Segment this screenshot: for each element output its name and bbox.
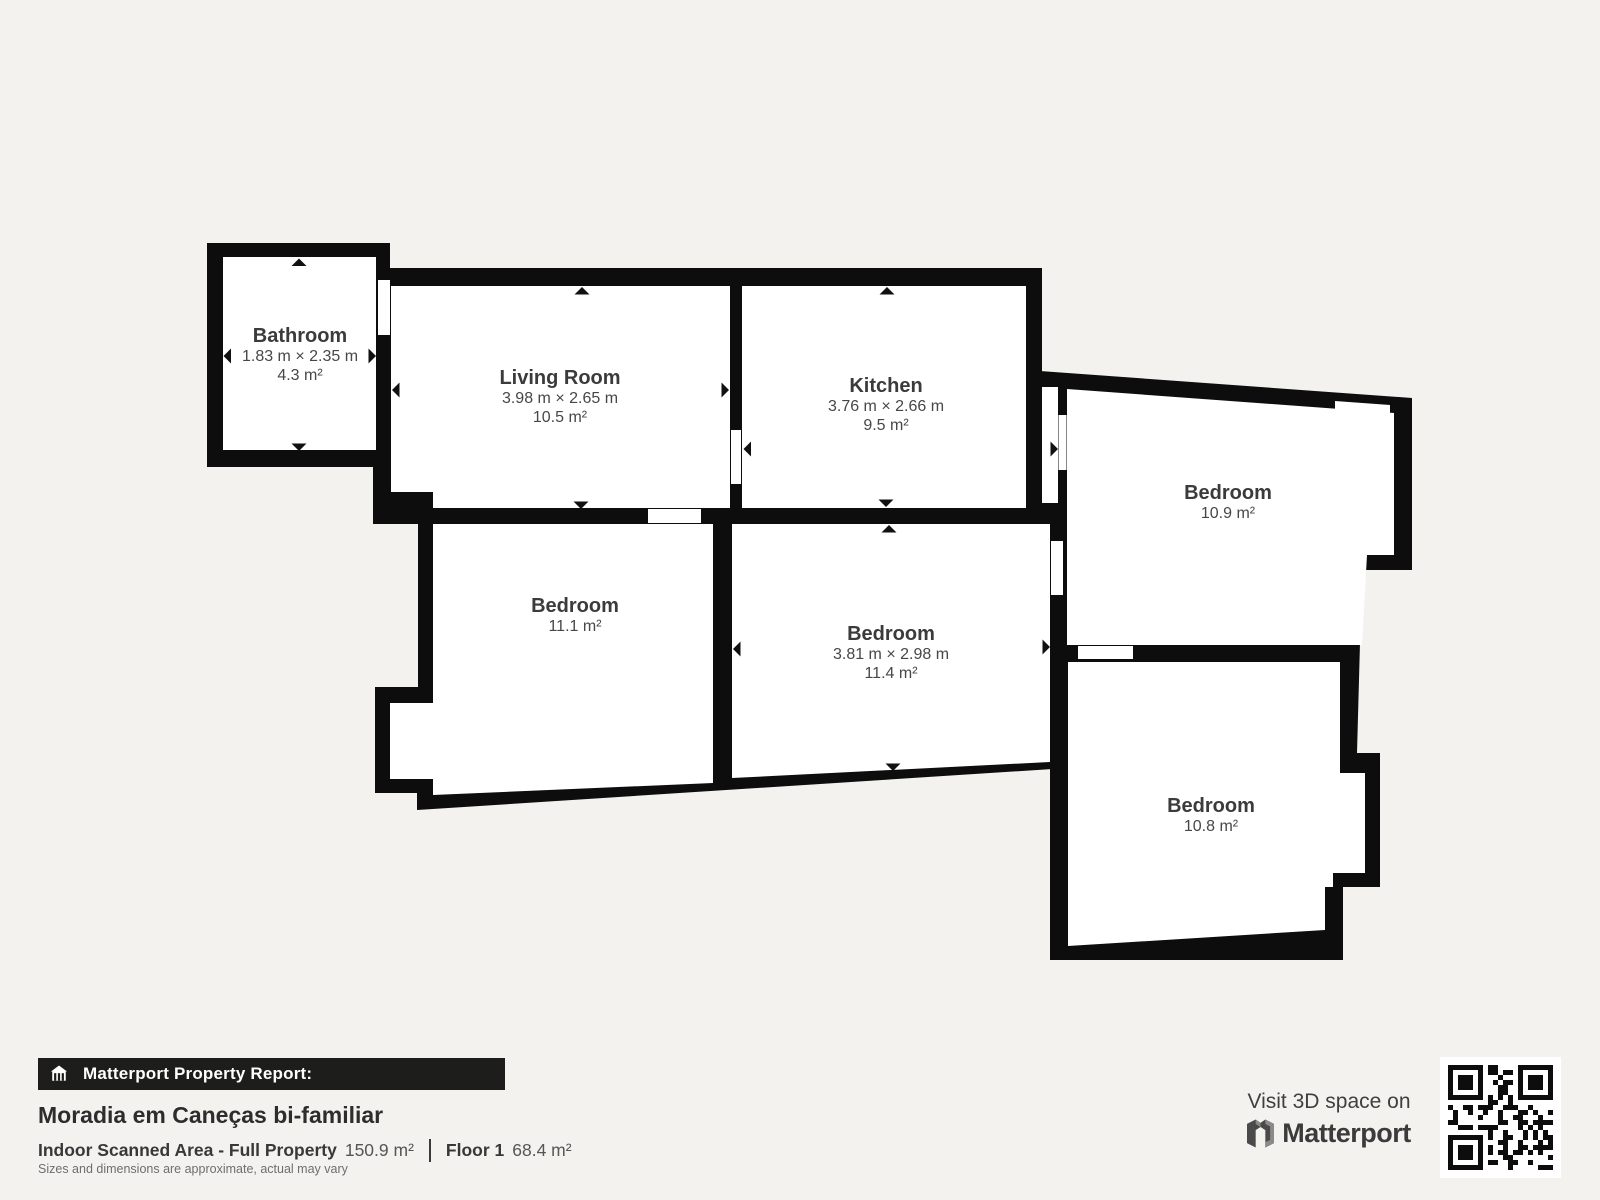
room-name: Living Room bbox=[499, 368, 620, 389]
area-summary: Indoor Scanned Area - Full Property 150.… bbox=[38, 1139, 572, 1162]
room-label-bedroom-bottom-right: Bedroom 10.8 m² bbox=[1167, 796, 1255, 836]
report-badge: Matterport Property Report: bbox=[38, 1058, 505, 1090]
window-opening-kitchen-right bbox=[1059, 415, 1067, 470]
room-dimensions: 3.81 m × 2.98 m bbox=[833, 645, 949, 664]
room-name: Bedroom bbox=[1184, 483, 1272, 504]
room-name: Bedroom bbox=[833, 624, 949, 645]
report-badge-label: Matterport Property Report: bbox=[83, 1064, 312, 1084]
floor-value: 68.4 m² bbox=[512, 1140, 571, 1161]
bedroom-left-floor bbox=[390, 524, 713, 795]
room-label-bedroom-middle: Bedroom 3.81 m × 2.98 m 11.4 m² bbox=[833, 624, 949, 683]
floor-plan-report: Bathroom 1.83 m × 2.35 m 4.3 m² Living R… bbox=[0, 0, 1600, 1200]
room-name: Bedroom bbox=[1167, 796, 1255, 817]
room-dimensions: 3.98 m × 2.65 m bbox=[499, 389, 620, 408]
property-title: Moradia em Caneças bi-familiar bbox=[38, 1102, 383, 1129]
matterport-logo: Matterport bbox=[1234, 1118, 1424, 1149]
floor-label: Floor 1 bbox=[446, 1140, 504, 1161]
floor-plan-drawing bbox=[0, 0, 1600, 1200]
room-area: 10.5 m² bbox=[499, 408, 620, 427]
room-dimensions: 3.76 m × 2.66 m bbox=[828, 397, 944, 416]
room-area: 11.4 m² bbox=[833, 664, 949, 683]
room-area: 11.1 m² bbox=[531, 617, 619, 636]
visit-3d-cta: Visit 3D space on Matterport bbox=[1234, 1090, 1424, 1149]
bedroom-right-balcony-strip bbox=[1042, 387, 1058, 503]
room-area: 9.5 m² bbox=[828, 416, 944, 435]
room-area: 4.3 m² bbox=[242, 366, 358, 385]
matterport-wordmark: Matterport bbox=[1282, 1118, 1411, 1149]
visit-3d-text: Visit 3D space on bbox=[1234, 1090, 1424, 1114]
room-name: Kitchen bbox=[828, 376, 944, 397]
room-name: Bedroom bbox=[531, 596, 619, 617]
door-opening-living-kitchen bbox=[731, 430, 741, 484]
disclaimer-text: Sizes and dimensions are approximate, ac… bbox=[38, 1162, 348, 1176]
wall-step bbox=[375, 489, 433, 524]
qr-code bbox=[1440, 1057, 1561, 1178]
matterport-logo-icon bbox=[1247, 1119, 1274, 1148]
building-icon bbox=[48, 1063, 70, 1085]
door-opening-bedroom-bottom-right bbox=[1078, 646, 1133, 659]
room-area: 10.8 m² bbox=[1167, 817, 1255, 836]
room-label-bedroom-right: Bedroom 10.9 m² bbox=[1184, 483, 1272, 523]
room-interiors bbox=[223, 257, 1394, 946]
door-opening-living-bedroom bbox=[648, 509, 701, 523]
room-label-bedroom-left: Bedroom 11.1 m² bbox=[531, 596, 619, 636]
door-opening-bathroom bbox=[378, 280, 390, 335]
room-name: Bathroom bbox=[242, 326, 358, 347]
door-opening-middle-right-bedroom bbox=[1051, 541, 1063, 595]
scanned-area-label: Indoor Scanned Area - Full Property bbox=[38, 1140, 337, 1161]
vertical-separator bbox=[429, 1139, 431, 1162]
room-label-living-room: Living Room 3.98 m × 2.65 m 10.5 m² bbox=[499, 368, 620, 427]
room-area: 10.9 m² bbox=[1184, 504, 1272, 523]
room-dimensions: 1.83 m × 2.35 m bbox=[242, 347, 358, 366]
room-label-bathroom: Bathroom 1.83 m × 2.35 m 4.3 m² bbox=[242, 326, 358, 385]
room-label-kitchen: Kitchen 3.76 m × 2.66 m 9.5 m² bbox=[828, 376, 944, 435]
scanned-area-value: 150.9 m² bbox=[345, 1140, 414, 1161]
